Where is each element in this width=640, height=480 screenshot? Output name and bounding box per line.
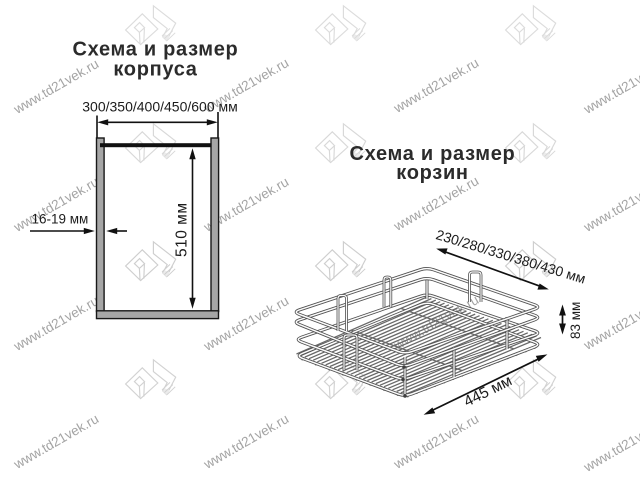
- svg-text:510 мм: 510 мм: [174, 203, 191, 257]
- svg-text:445 мм: 445 мм: [461, 372, 515, 410]
- svg-text:83 мм: 83 мм: [568, 302, 583, 339]
- svg-text:корзин: корзин: [396, 162, 468, 184]
- svg-text:16-19 мм: 16-19 мм: [32, 212, 89, 227]
- svg-text:Схема и размер: Схема и размер: [73, 39, 239, 61]
- svg-text:300/350/400/450/600 мм: 300/350/400/450/600 мм: [82, 99, 238, 115]
- svg-text:корпуса: корпуса: [113, 59, 197, 81]
